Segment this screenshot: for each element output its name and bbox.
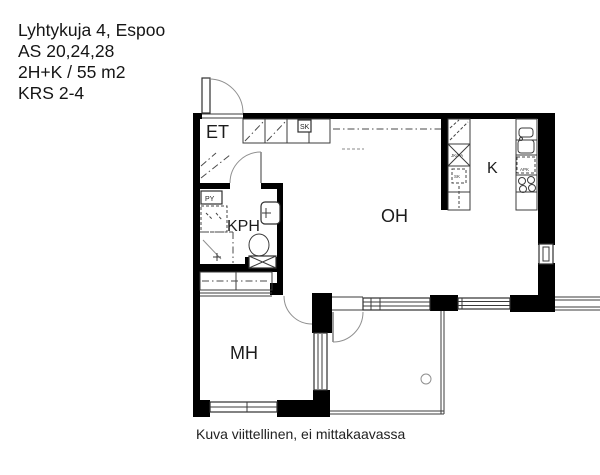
stove-burner [529, 185, 536, 192]
wall-oh-bottom-segment [430, 295, 458, 311]
wall-corner-bottom-right [510, 295, 555, 312]
stove-burner [520, 186, 527, 193]
balcony [330, 311, 444, 414]
kph-door-arc [230, 152, 261, 183]
mh-door-arc [284, 296, 312, 324]
stove-burner [519, 178, 526, 185]
fridge-freezer-label: JK/PA [451, 153, 463, 158]
floorplan-page: Lyhtykuja 4, Espoo AS 20,24,28 2H+K / 55… [0, 0, 600, 475]
disclaimer-caption: Kuva viittellinen, ei mittakaavassa [196, 426, 405, 442]
wall-kitchen-stub [441, 119, 448, 210]
sink-drainer [519, 128, 533, 137]
closet-rail-mark [245, 121, 264, 141]
mh-balcony-window [314, 333, 327, 390]
et-closet-mark [201, 155, 230, 178]
washer-label: PY [205, 196, 215, 203]
balcony-door-arc [333, 312, 363, 342]
cleaning-cabinet-label: SK [454, 174, 460, 179]
entry-hall: ET [201, 122, 230, 178]
toilet [249, 234, 269, 256]
stove-burner [528, 177, 535, 184]
wall-kph-top-left [196, 183, 230, 189]
hall-cabinet-label: SK [300, 124, 310, 131]
entry-door-arc [209, 79, 243, 113]
balcony-drain [421, 374, 431, 384]
floorplan-drawing: SK ET KPH PY [0, 0, 600, 475]
room-label-k: K [487, 160, 498, 177]
wall-kph-right [277, 183, 283, 295]
oh-window-left [363, 298, 430, 310]
kitchen: K JK/PA SK APK [448, 119, 537, 210]
wall-mh-bottom-right [277, 400, 330, 417]
hall-closets: SK [243, 119, 441, 149]
wall-right-upper [538, 113, 555, 245]
washing-machine-outline [201, 206, 227, 232]
entry-door-leaf [202, 78, 210, 113]
kitchen-sink [518, 140, 534, 153]
wall-kph-top-right [261, 183, 283, 189]
room-label-oh: OH [381, 206, 408, 226]
wall-balcony-door-jamb [312, 293, 332, 333]
wall-top-left-stub [193, 113, 202, 119]
walls [193, 113, 555, 417]
shower-screen [203, 240, 221, 259]
bathroom: KPH PY [200, 152, 280, 268]
kitchen-faucet [520, 138, 523, 141]
entry-door [202, 78, 243, 118]
dishwasher-label: APK [520, 167, 529, 172]
closet-rail-mark [267, 121, 286, 141]
et-closet-mark [201, 153, 216, 166]
wall-mh-bottom-left [193, 400, 210, 417]
room-label-mh: MH [230, 343, 258, 363]
neighbor-structure-lines [555, 297, 600, 310]
room-label-et: ET [206, 122, 229, 142]
living-room: OH [332, 206, 553, 342]
wall-top [243, 113, 555, 119]
oh-window-right [458, 298, 510, 309]
bedroom: MH [200, 272, 327, 412]
